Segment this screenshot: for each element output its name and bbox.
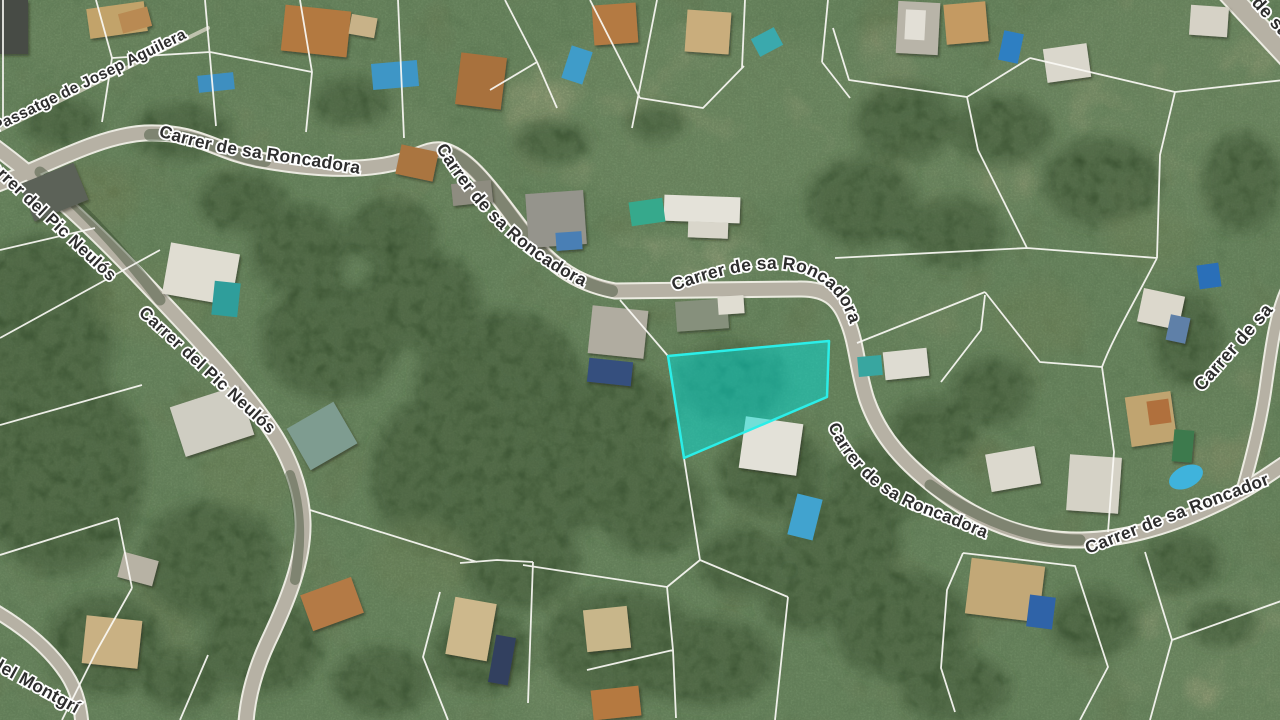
building	[455, 52, 507, 109]
tarp	[555, 231, 582, 251]
building	[904, 9, 926, 40]
map-viewport[interactable]: Passatge de Josep Aguilera Carrer de sa …	[0, 0, 1280, 720]
building	[883, 348, 930, 380]
building	[1146, 399, 1171, 426]
building	[1189, 5, 1229, 38]
pool	[1196, 263, 1221, 290]
building	[592, 3, 639, 46]
building	[591, 686, 642, 720]
building	[0, 0, 28, 54]
building	[717, 295, 744, 315]
map-canvas[interactable]: Passatge de Josep Aguilera Carrer de sa …	[0, 0, 1280, 720]
building	[583, 606, 631, 652]
building	[588, 305, 649, 359]
pool	[857, 355, 883, 377]
building	[685, 10, 732, 55]
pool	[371, 60, 419, 90]
pool	[211, 281, 240, 318]
building	[281, 5, 351, 58]
solar-panels	[587, 358, 633, 386]
building	[664, 195, 741, 224]
pool	[1026, 595, 1056, 630]
building	[943, 1, 988, 45]
pool	[628, 198, 665, 226]
building	[688, 221, 729, 238]
building	[1172, 429, 1195, 463]
